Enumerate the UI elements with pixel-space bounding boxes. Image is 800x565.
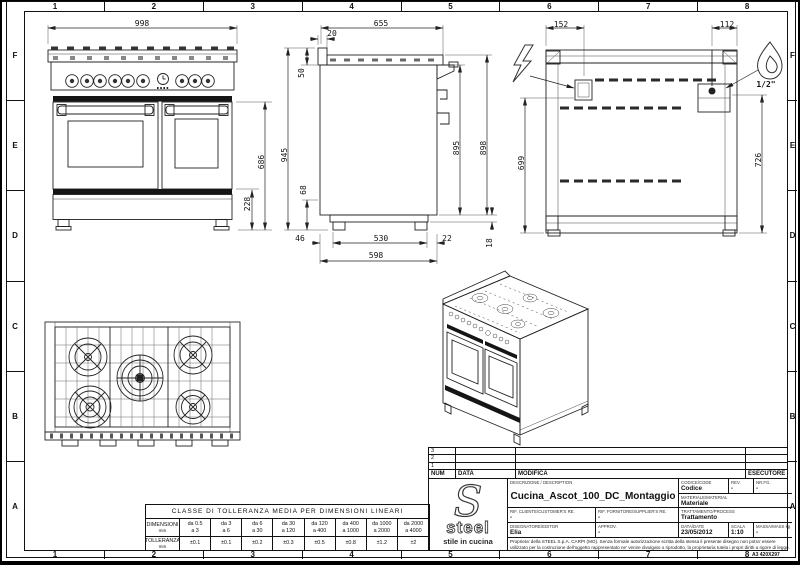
grid-row-label: F (6, 11, 24, 101)
grid-ref-left: F E D C B A (6, 11, 24, 551)
top-view-drawing (40, 315, 250, 460)
rear-view-drawing (500, 18, 795, 263)
dim-front-base-height: 228 (242, 187, 252, 221)
approval-cell: APPROV. - (596, 523, 679, 537)
electrical-inlet (575, 80, 592, 100)
front-view-drawing (38, 18, 298, 240)
grid-row-label: B (788, 372, 797, 462)
grid-col-label: 6 (500, 1, 599, 11)
electric-symbol-icon (513, 45, 533, 82)
legal-disclaimer: Proprieta' della STEEL S.p.A. CARPI (MO)… (508, 538, 792, 550)
clock-icon (157, 74, 169, 89)
rev-cell: REV. - (729, 479, 754, 493)
dim-side-depth: 655 (364, 18, 398, 28)
revision-row-num: 1 (429, 463, 456, 470)
date-cell: DATA/DATE 23/05/2012 (679, 523, 729, 537)
sheet-edge-bottom (0, 561, 800, 565)
dim-side-rear-offset: 20 (315, 28, 349, 38)
tolerance-table-title: CLASSE DI TOLLERANZA MEDIA PER DIMENSION… (146, 505, 429, 519)
sheet-format-note: A3 420X297 (752, 552, 780, 558)
grid-col-label: 8 (698, 1, 796, 11)
grid-col-label: 8 (698, 550, 796, 559)
dim-front-door-height: 686 (256, 145, 266, 179)
dim-side-rear-height: 898 (478, 131, 488, 165)
dim-gas-connection: 1/2" (749, 79, 783, 89)
dim-side-front-foot: 46 (283, 233, 317, 243)
isometric-view-drawing (425, 268, 650, 448)
description-cell: DESCRIZIONE / DESCRIPTION Cucina_Ascot_1… (508, 479, 679, 507)
grid-col-label: 3 (204, 550, 303, 559)
editor-cell: DISEGNATORE/EDITOR Elia (508, 523, 596, 537)
logo-tagline: stile in cucina (443, 537, 493, 546)
revision-header-num: NUM (429, 470, 456, 478)
dim-rear-elec-height: 699 (516, 146, 526, 180)
dim-rear-gas-offset: 112 (710, 19, 744, 29)
dim-side-total-height: 945 (279, 138, 289, 172)
grid-col-label: 3 (204, 1, 303, 11)
grid-col-label: 5 (402, 550, 501, 559)
grid-row-label: A (6, 462, 24, 551)
mass-cell: MASSA/MASS kg - (754, 523, 792, 537)
dim-side-rear-foot: 22 (430, 233, 464, 243)
revision-header-esecutore: ESECUTORE (746, 470, 787, 478)
grid-row-label: D (6, 191, 24, 281)
material-cell: MATERIALE/MATERIAL Materiale (679, 494, 792, 508)
nrfg-cell: NR.FG. - (754, 479, 792, 493)
grid-row-label: C (6, 282, 24, 372)
knob-icons (66, 75, 215, 88)
code-cell: CODICE/CODE Codice (679, 479, 729, 493)
customer-ref-cell: RIF. CLIENTE/CUSTOMER'S RE. - (508, 508, 596, 522)
revision-table: 3 2 1 NUM DATA MODIFICA ESECUTORE (428, 447, 788, 479)
drawing-sheet: 1 2 3 4 5 6 7 8 1 2 3 4 5 6 7 8 F E D C … (0, 0, 800, 565)
title-block: S steel stile in cucina DESCRIZIONE / DE… (428, 479, 788, 551)
dim-front-width: 998 (125, 18, 159, 28)
revision-row-num: 3 (429, 448, 456, 455)
dim-side-bottom-gap: 18 (484, 226, 494, 260)
logo-brand: steel (446, 518, 490, 537)
grid-row-label: E (6, 101, 24, 191)
grid-col-label: 7 (599, 1, 698, 11)
grid-col-label: 1 (6, 550, 105, 559)
supplier-ref-cell: RIF. FORNITORE/SUPPLIER'S RE. - (596, 508, 679, 522)
grid-ref-bottom: 1 2 3 4 5 6 7 8 (6, 550, 796, 559)
grid-col-label: 5 (402, 1, 501, 11)
revision-row-num: 2 (429, 455, 456, 462)
grid-row-label: C (788, 282, 797, 372)
grid-col-label: 4 (303, 550, 402, 559)
process-cell: TRATTAMENTO/PROCESS Trattamento (679, 508, 792, 522)
grid-row-label: B (6, 372, 24, 462)
sheet-edge-left (0, 0, 2, 565)
burner-icons (69, 336, 212, 428)
dim-rear-elec-offset: 152 (544, 19, 578, 29)
company-logo: S steel stile in cucina (429, 479, 508, 550)
dim-rear-gas-height: 726 (753, 143, 763, 177)
grid-ref-top: 1 2 3 4 5 6 7 8 (6, 1, 796, 11)
gas-flame-icon (758, 42, 782, 79)
revision-header-modifica: MODIFICA (516, 470, 746, 478)
grid-col-label: 2 (105, 1, 204, 11)
grid-col-label: 6 (500, 550, 599, 559)
grid-col-label: 7 (599, 550, 698, 559)
dim-side-plinth-height: 68 (298, 173, 308, 207)
grid-col-label: 1 (6, 1, 105, 11)
dim-side-feet-span: 530 (364, 233, 398, 243)
grid-col-label: 4 (303, 1, 402, 11)
dim-side-top-height: 50 (296, 56, 306, 90)
dim-side-body-height: 895 (451, 131, 461, 165)
tolerance-table: CLASSE DI TOLLERANZA MEDIA PER DIMENSION… (145, 504, 430, 551)
scale-cell: SCALA 1:10 (729, 523, 754, 537)
grid-col-label: 2 (105, 550, 204, 559)
drawing-title: Cucina_Ascot_100_DC_Montaggio (508, 485, 678, 507)
dim-side-body-depth: 598 (359, 250, 393, 260)
